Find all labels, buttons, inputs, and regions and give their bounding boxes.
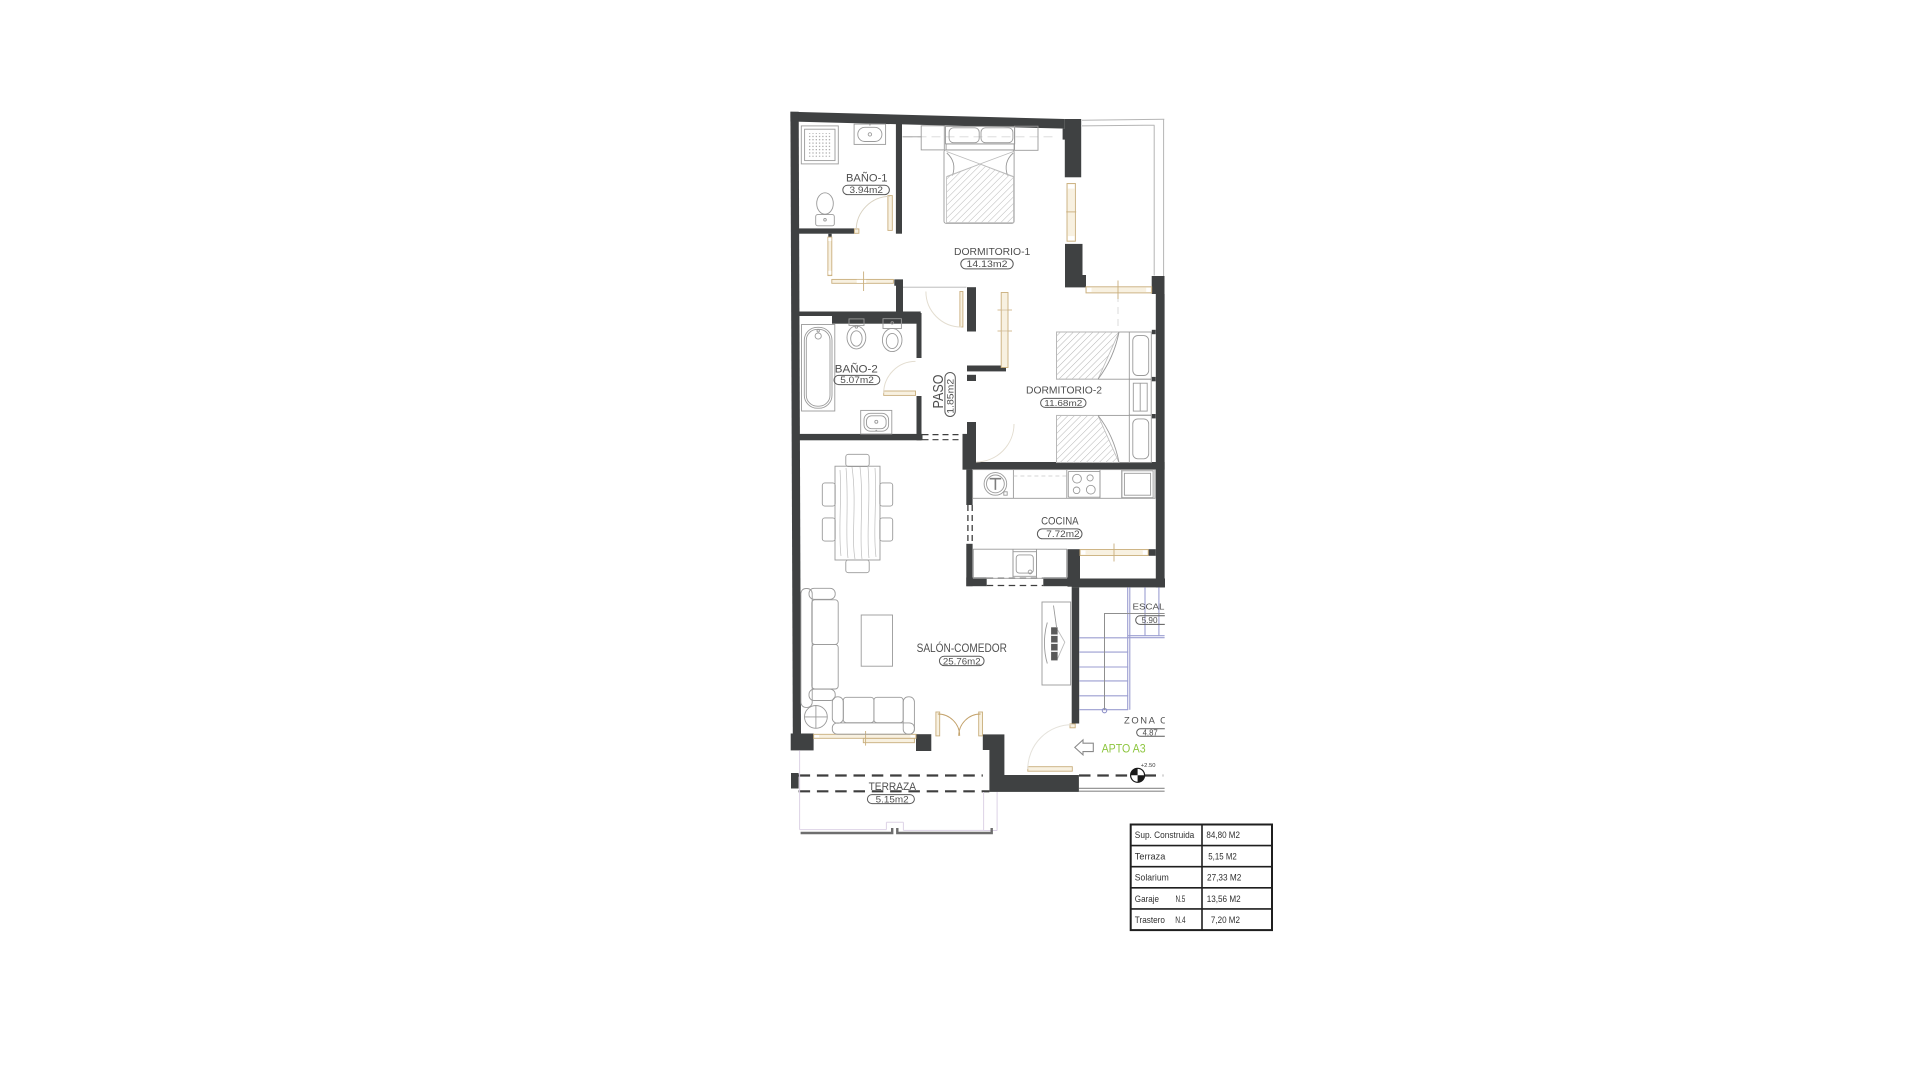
svg-text:4.87: 4.87: [1143, 728, 1158, 737]
svg-text:1.85m2: 1.85m2: [945, 379, 956, 414]
svg-text:APTO A3: APTO A3: [1102, 743, 1146, 755]
svg-text:Garaje: Garaje: [1135, 894, 1159, 904]
svg-text:+2.50: +2.50: [1141, 763, 1156, 769]
svg-text:27,33 M2: 27,33 M2: [1207, 872, 1241, 882]
svg-text:7,20 M2: 7,20 M2: [1211, 915, 1240, 925]
svg-text:14.13m2: 14.13m2: [967, 259, 1008, 269]
svg-text:5.90: 5.90: [1142, 616, 1158, 625]
svg-text:5.07m2: 5.07m2: [840, 375, 874, 385]
svg-text:84,80 M2: 84,80 M2: [1206, 830, 1240, 840]
svg-text:5.15m2: 5.15m2: [876, 794, 909, 804]
svg-text:ESCALERA: ESCALERA: [1133, 602, 1186, 611]
svg-text:7.72m2: 7.72m2: [1046, 529, 1079, 539]
svg-text:ZONA CO: ZONA CO: [1124, 714, 1177, 725]
svg-text:13,56 M2: 13,56 M2: [1207, 894, 1241, 904]
svg-text:BAÑO-2: BAÑO-2: [835, 363, 878, 376]
svg-text:BAÑO-1: BAÑO-1: [846, 171, 888, 184]
svg-text:3.94m2: 3.94m2: [850, 185, 884, 195]
svg-text:DORMITORIO-1: DORMITORIO-1: [954, 247, 1031, 258]
svg-text:SALÓN-COMEDOR: SALÓN-COMEDOR: [917, 642, 1007, 655]
svg-text:N.4: N.4: [1175, 915, 1185, 925]
svg-text:Terraza: Terraza: [1135, 852, 1166, 862]
svg-text:N.5: N.5: [1176, 894, 1186, 904]
svg-text:COCINA: COCINA: [1041, 516, 1079, 528]
svg-text:25.76m2: 25.76m2: [943, 656, 981, 666]
svg-text:Sup. Construida: Sup. Construida: [1135, 830, 1195, 840]
svg-text:Solarium: Solarium: [1135, 872, 1169, 882]
svg-text:TERRAZA: TERRAZA: [869, 781, 917, 793]
svg-text:5,15 M2: 5,15 M2: [1208, 852, 1237, 862]
svg-text:DORMITORIO-2: DORMITORIO-2: [1026, 385, 1102, 396]
svg-text:11.68m2: 11.68m2: [1044, 398, 1082, 408]
svg-text:Trastero: Trastero: [1135, 915, 1165, 925]
